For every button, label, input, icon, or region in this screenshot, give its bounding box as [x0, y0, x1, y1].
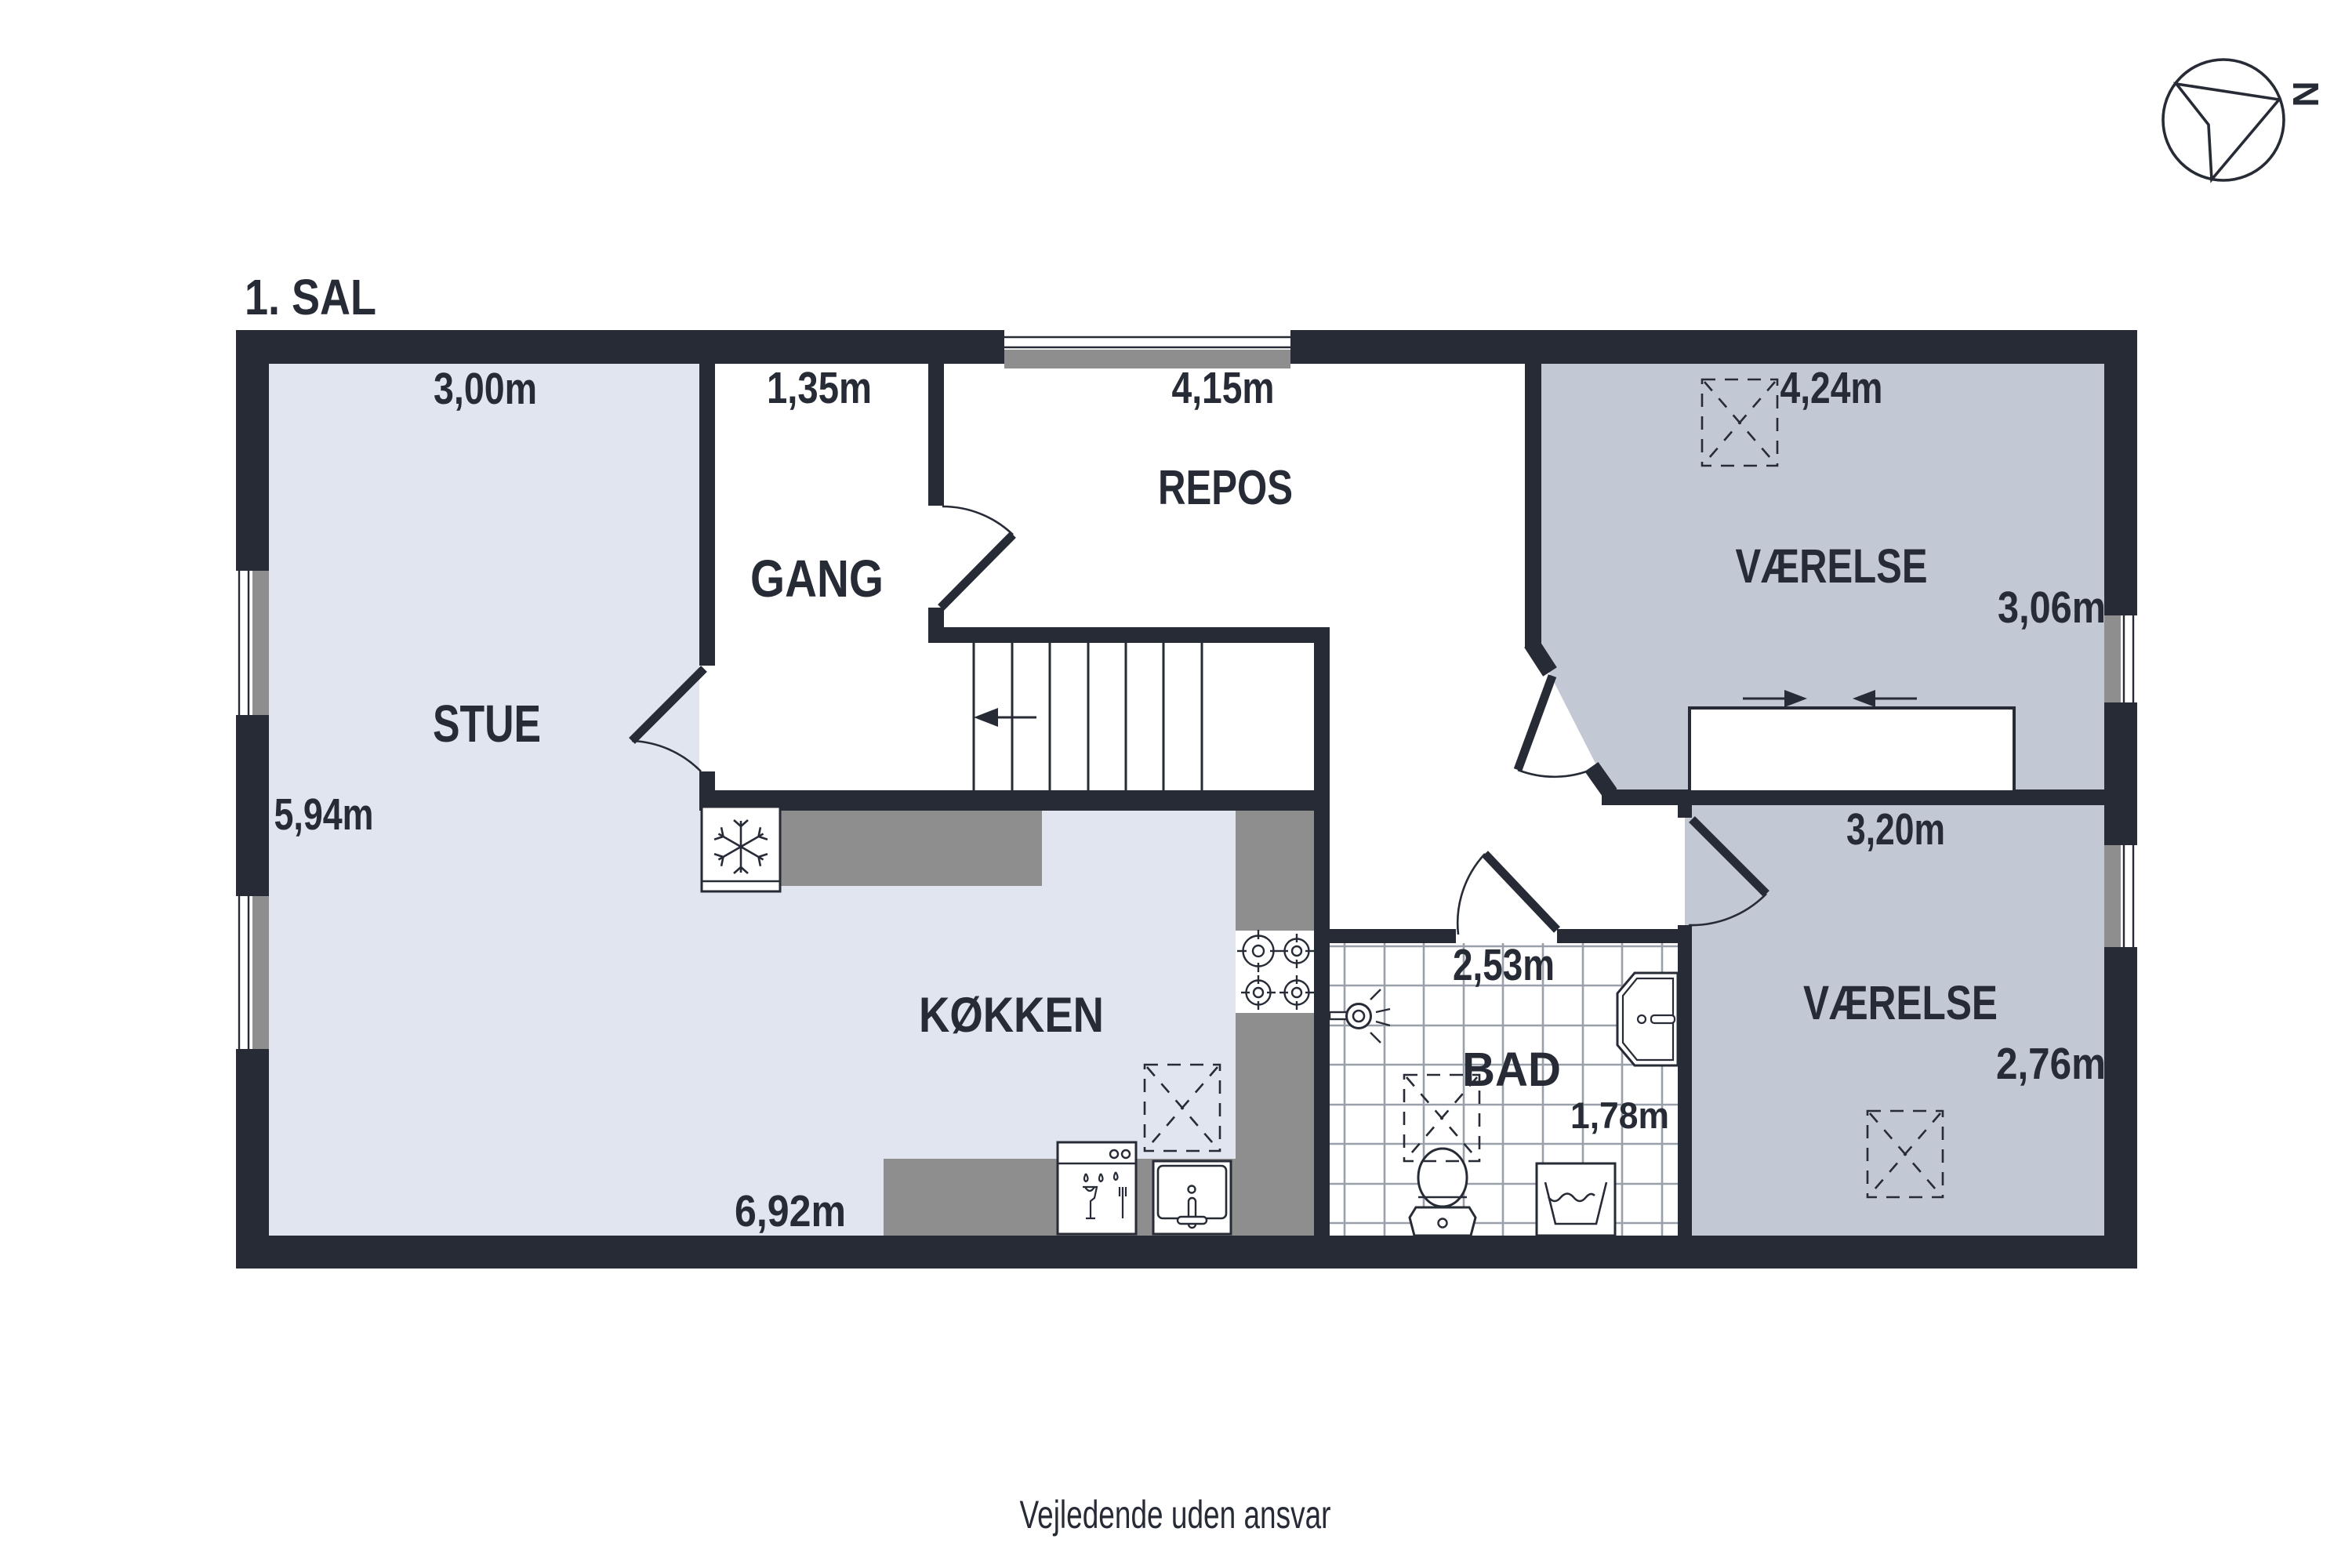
- svg-text:REPOS: REPOS: [1158, 461, 1293, 515]
- svg-text:3,00m: 3,00m: [434, 364, 537, 414]
- svg-text:1. SAL: 1. SAL: [245, 269, 376, 325]
- svg-text:Vejledende uden ansvar: Vejledende uden ansvar: [1020, 1493, 1331, 1537]
- svg-text:GANG: GANG: [750, 550, 884, 608]
- svg-text:BAD: BAD: [1462, 1043, 1561, 1096]
- svg-text:KØKKEN: KØKKEN: [919, 988, 1104, 1043]
- svg-text:4,24m: 4,24m: [1780, 363, 1883, 413]
- svg-text:STUE: STUE: [433, 695, 541, 753]
- svg-text:1,35m: 1,35m: [767, 363, 872, 413]
- svg-text:2,53m: 2,53m: [1453, 940, 1555, 990]
- svg-text:N: N: [2285, 81, 2326, 107]
- svg-text:3,06m: 3,06m: [1998, 583, 2106, 633]
- svg-text:5,94m: 5,94m: [274, 789, 374, 840]
- svg-text:2,76m: 2,76m: [1996, 1039, 2106, 1089]
- svg-text:3,20m: 3,20m: [1846, 804, 1945, 855]
- svg-text:VÆRELSE: VÆRELSE: [1803, 976, 1998, 1029]
- svg-text:4,15m: 4,15m: [1172, 363, 1275, 413]
- svg-text:6,92m: 6,92m: [735, 1186, 846, 1236]
- svg-text:1,78m: 1,78m: [1570, 1094, 1669, 1136]
- svg-text:VÆRELSE: VÆRELSE: [1736, 539, 1928, 593]
